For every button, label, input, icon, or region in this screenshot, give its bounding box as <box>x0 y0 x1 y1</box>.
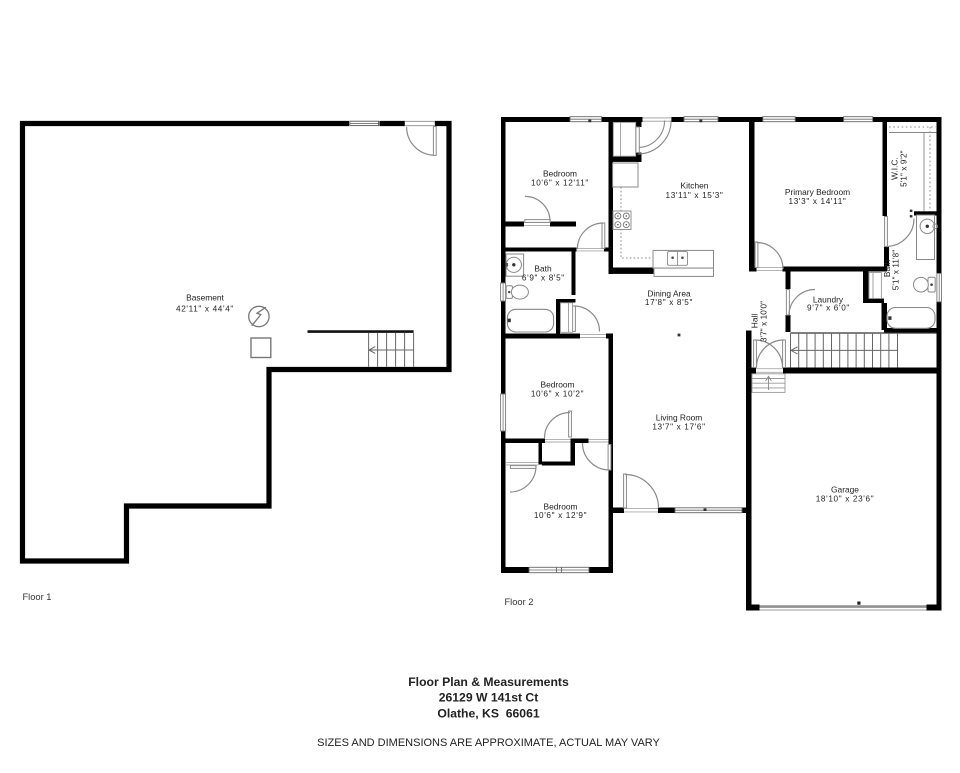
svg-text:6'9" x 8'5": 6'9" x 8'5" <box>522 274 565 283</box>
svg-text:17'8" x 8'5": 17'8" x 8'5" <box>645 298 693 307</box>
svg-text:Bedroom: Bedroom <box>543 169 577 179</box>
svg-text:10'6" x 12'9": 10'6" x 12'9" <box>534 511 587 520</box>
svg-text:Bath: Bath <box>882 260 892 278</box>
svg-text:SIZES AND DIMENSIONS ARE APPRO: SIZES AND DIMENSIONS ARE APPROXIMATE, AC… <box>317 737 660 749</box>
svg-text:Primary Bedroom: Primary Bedroom <box>785 187 850 197</box>
svg-text:13'7" x 17'6": 13'7" x 17'6" <box>652 423 705 432</box>
svg-text:Dining Area: Dining Area <box>647 289 691 299</box>
svg-text:Floor 2: Floor 2 <box>505 597 534 607</box>
svg-text:W.I.C.: W.I.C. <box>890 157 900 180</box>
svg-text:Garage: Garage <box>831 485 859 495</box>
svg-text:Hall: Hall <box>750 314 760 329</box>
svg-text:Floor 1: Floor 1 <box>23 592 52 602</box>
svg-text:26129 W 141st Ct: 26129 W 141st Ct <box>439 691 539 705</box>
svg-text:Olathe, KS 66061: Olathe, KS 66061 <box>437 707 540 721</box>
svg-text:13'11" x 15'3": 13'11" x 15'3" <box>666 191 724 200</box>
svg-text:5'1" x 9'2": 5'1" x 9'2" <box>900 150 909 187</box>
svg-text:Floor Plan & Measurements: Floor Plan & Measurements <box>408 675 569 689</box>
svg-text:Kitchen: Kitchen <box>681 181 709 191</box>
svg-text:Bath: Bath <box>534 264 552 274</box>
svg-text:42'11" x 44'4": 42'11" x 44'4" <box>176 305 234 314</box>
svg-text:3'7" x 10'0": 3'7" x 10'0" <box>760 301 769 342</box>
svg-text:Living Room: Living Room <box>656 413 703 423</box>
svg-text:10'6" x 10'2": 10'6" x 10'2" <box>531 390 584 399</box>
svg-text:Basement: Basement <box>186 293 224 303</box>
svg-text:Bedroom: Bedroom <box>541 380 575 390</box>
svg-text:5'1" x 11'8": 5'1" x 11'8" <box>892 250 901 291</box>
svg-text:10'6" x 12'11": 10'6" x 12'11" <box>531 179 589 188</box>
svg-text:18'10" x 23'6": 18'10" x 23'6" <box>816 495 875 504</box>
svg-text:9'7" x 6'0": 9'7" x 6'0" <box>807 304 850 313</box>
svg-text:Bedroom: Bedroom <box>544 502 578 512</box>
svg-text:13'3" x 14'11": 13'3" x 14'11" <box>789 197 847 206</box>
